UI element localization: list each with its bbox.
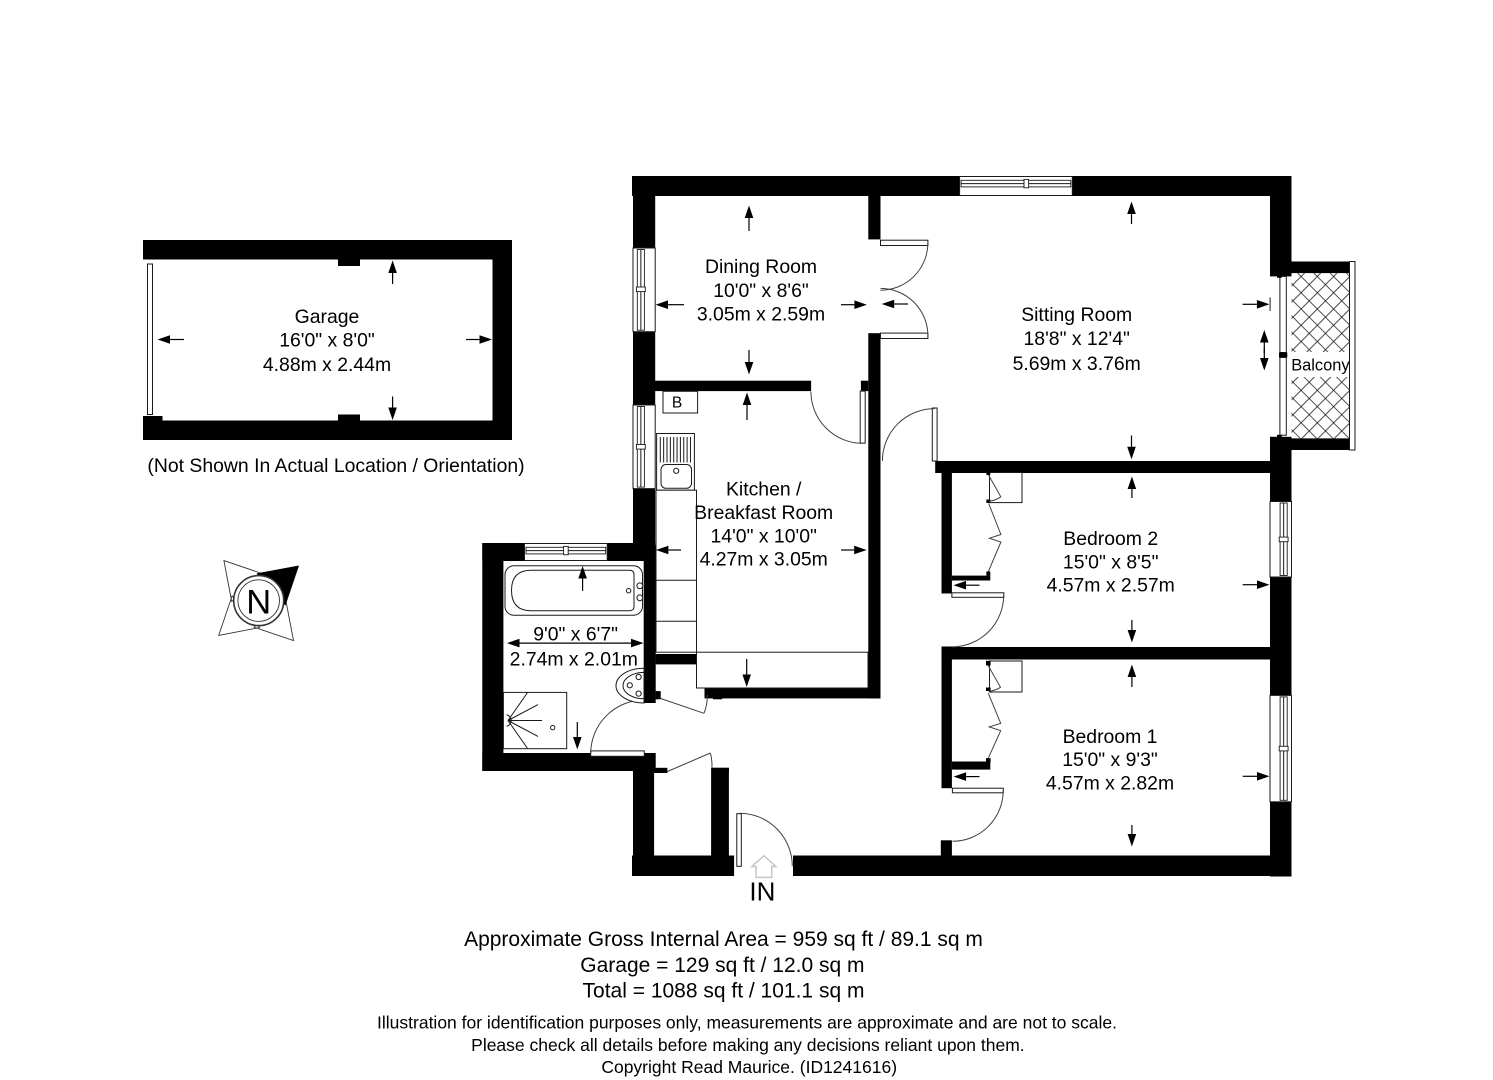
svg-text:IN: IN [749, 876, 775, 906]
svg-text:Illustration for identificatio: Illustration for identification purposes… [377, 1013, 1117, 1033]
svg-text:Bedroom 1: Bedroom 1 [1063, 726, 1158, 748]
svg-text:Garage: Garage [295, 306, 360, 328]
svg-text:15'0" x 8'5": 15'0" x 8'5" [1063, 551, 1159, 573]
svg-text:15'0" x 9'3": 15'0" x 9'3" [1062, 749, 1158, 771]
svg-text:Sitting Room: Sitting Room [1021, 304, 1132, 326]
svg-text:18'8" x 12'4": 18'8" x 12'4" [1024, 328, 1130, 350]
svg-text:Dining Room: Dining Room [705, 256, 817, 278]
svg-text:10'0" x 8'6": 10'0" x 8'6" [713, 280, 809, 302]
svg-text:Total = 1088 sq ft / 101.1 sq: Total = 1088 sq ft / 101.1 sq m [583, 980, 865, 1003]
svg-text:Breakfast Room: Breakfast Room [694, 502, 833, 524]
svg-text:Copyright Read Maurice. (ID124: Copyright Read Maurice. (ID1241616) [601, 1057, 897, 1077]
svg-text:B: B [672, 395, 682, 412]
svg-text:14'0" x 10'0": 14'0" x 10'0" [711, 525, 817, 547]
svg-text:16'0" x 8'0": 16'0" x 8'0" [279, 330, 375, 352]
svg-text:Kitchen /: Kitchen / [726, 479, 802, 501]
svg-text:4.57m x 2.82m: 4.57m x 2.82m [1046, 773, 1174, 795]
svg-text:9'0" x 6'7": 9'0" x 6'7" [533, 624, 618, 646]
svg-text:5.69m x 3.76m: 5.69m x 3.76m [1013, 353, 1141, 375]
svg-text:4.88m x 2.44m: 4.88m x 2.44m [263, 354, 391, 376]
svg-text:4.57m x 2.57m: 4.57m x 2.57m [1047, 575, 1175, 597]
svg-text:Bedroom 2: Bedroom 2 [1063, 528, 1158, 550]
svg-text:Please check all details befor: Please check all details before making a… [471, 1035, 1025, 1055]
svg-text:Garage = 129 sq ft / 12.0 sq m: Garage = 129 sq ft / 12.0 sq m [580, 954, 864, 977]
svg-text:3.05m x 2.59m: 3.05m x 2.59m [697, 303, 825, 325]
svg-text:2.74m x 2.01m: 2.74m x 2.01m [510, 649, 638, 671]
svg-text:Balcony: Balcony [1291, 357, 1350, 375]
svg-text:(Not Shown In Actual Location: (Not Shown In Actual Location / Orientat… [147, 455, 524, 477]
svg-text:Approximate Gross Internal Are: Approximate Gross Internal Area = 959 sq… [464, 928, 983, 951]
svg-text:4.27m x 3.05m: 4.27m x 3.05m [700, 549, 828, 571]
svg-text:N: N [246, 583, 271, 621]
